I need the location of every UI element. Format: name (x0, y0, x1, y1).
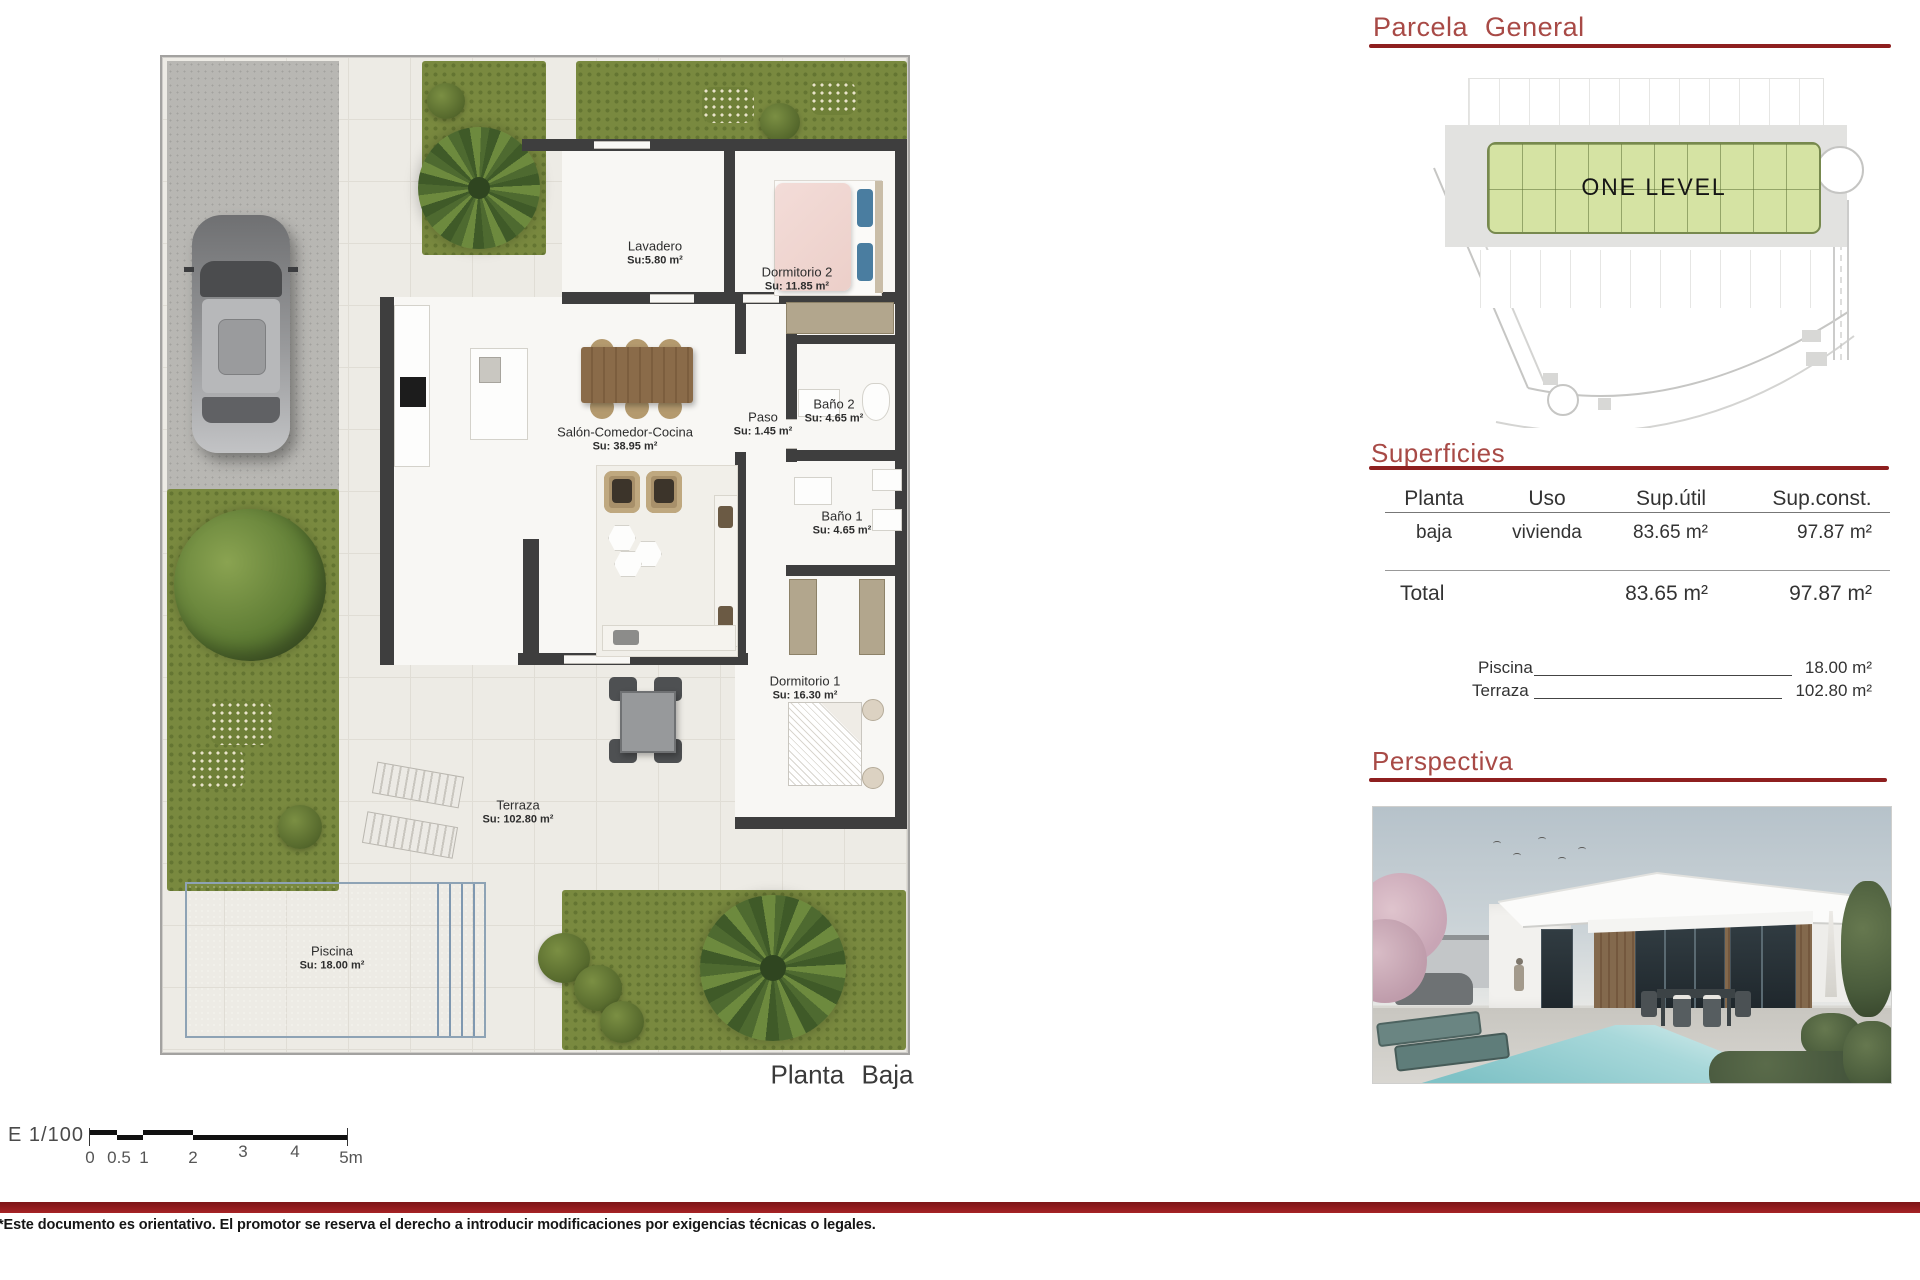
car-illustration (192, 215, 290, 453)
bedside-stool (862, 699, 884, 721)
plan-sheet-page: Lavadero Su:5.80 m² Dormitorio 2 Su: 11.… (0, 0, 1920, 1280)
photo-tree-right (1841, 881, 1892, 1017)
parcel-strip-bottom (1480, 250, 1820, 308)
total-sup-util: 83.65 m² (1625, 582, 1708, 606)
bed-headboard (875, 181, 883, 293)
sink (479, 357, 501, 383)
car-mirror-right (288, 267, 298, 272)
site-plan: ONE LEVEL (1430, 70, 1908, 428)
table-header-rule (1385, 512, 1890, 513)
bath2-toilet (862, 383, 890, 421)
cul-de-sac (1816, 146, 1864, 194)
scale-bar-tick (347, 1128, 348, 1146)
wall-feature-tv (523, 539, 539, 664)
extra-line-terraza (1534, 698, 1782, 699)
floor-plan: Lavadero Su:5.80 m² Dormitorio 2 Su: 11.… (160, 55, 910, 1055)
sofa-bottom (602, 625, 736, 651)
bush-left (278, 805, 322, 849)
wall-under-lavadero (562, 292, 736, 304)
section-rule-parcela (1369, 44, 1891, 48)
bed-pillow (857, 189, 873, 227)
section-rule-superficies (1369, 466, 1889, 470)
scale-bar-segment (143, 1130, 193, 1135)
armchair-cushion (654, 479, 674, 503)
wardrobe-dorm2 (786, 302, 894, 334)
bedside-stool (862, 767, 884, 789)
pool-step-line (473, 884, 475, 1036)
wall-paso-stub (735, 304, 746, 354)
person-head (1516, 958, 1523, 965)
room-label-lavadero: Lavadero Su:5.80 m² (627, 239, 683, 268)
car-windshield (200, 261, 282, 297)
section-rule-perspectiva (1369, 778, 1887, 782)
sun-lounger (372, 762, 464, 809)
tree-left (174, 509, 326, 661)
terrace-table (620, 691, 676, 753)
scale-bar-segment (90, 1130, 117, 1135)
scale-number: 5m (339, 1148, 363, 1168)
cooktop (400, 377, 426, 407)
wardrobe-dorm1 (859, 579, 885, 655)
photo-chair (1641, 991, 1657, 1017)
extra-line-piscina (1534, 675, 1792, 676)
wall-dorm1-bottom (735, 817, 907, 829)
photo-chair (1673, 995, 1691, 1027)
wall-lavadero-dorm2 (724, 139, 735, 304)
bush-top (427, 83, 465, 119)
room-label-salon: Salón-Comedor-Cocina Su: 38.95 m² (557, 425, 693, 454)
person-body (1514, 965, 1524, 991)
photo-table-top (1657, 989, 1735, 998)
parcel-strip-top (1468, 78, 1824, 127)
extra-value-terraza: 102.80 m² (1795, 681, 1872, 701)
extra-value-piscina: 18.00 m² (1805, 658, 1872, 678)
flower-patch-top-1 (702, 87, 754, 123)
scale-number: 3 (238, 1142, 247, 1162)
pool-step-line (449, 884, 451, 1036)
room-label-paso: Paso Su: 1.45 m² (734, 410, 793, 439)
scale-number: 1 (139, 1148, 148, 1168)
photo-table-leg (1661, 998, 1665, 1026)
wall-bath2-top (797, 335, 907, 344)
one-level-label: ONE LEVEL (1496, 144, 1813, 232)
pool-step-line (437, 884, 439, 1036)
dining-table (581, 347, 693, 403)
room-label-bano2: Baño 2 Su: 4.65 m² (805, 397, 864, 426)
wall-kitchen-left (380, 297, 394, 665)
armchair (646, 471, 682, 513)
room-label-bano1: Baño 1 Su: 4.65 m² (813, 509, 872, 538)
window-top (594, 141, 650, 149)
armchair-cushion (612, 479, 632, 503)
scale-number: 0 (85, 1148, 94, 1168)
section-title-parcela: Parcela General (1373, 12, 1585, 43)
scale-number: 0.5 (107, 1148, 131, 1168)
photo-chair (1735, 991, 1751, 1017)
wall-top (522, 139, 907, 151)
total-sup-const: 97.87 m² (1789, 582, 1872, 606)
table-total-rule (1385, 570, 1890, 571)
car-rear-window (202, 397, 280, 423)
scale-bar-segment (117, 1135, 143, 1140)
cell-sup-util: 83.65 m² (1633, 522, 1708, 544)
scale-label: E 1/100 (8, 1124, 84, 1147)
scale-number: 4 (290, 1142, 299, 1162)
col-header-sup-util: Sup.útil (1636, 487, 1706, 511)
car-mirror-left (184, 267, 194, 272)
scale-bar-tick (89, 1128, 90, 1146)
cell-planta: baja (1416, 522, 1452, 544)
bath1-fixture (872, 469, 902, 491)
cell-sup-const: 97.87 m² (1797, 522, 1872, 544)
armchair (604, 471, 640, 513)
room-label-dormitorio1: Dormitorio 1 Su: 16.30 m² (770, 674, 841, 703)
scale-number: 2 (188, 1148, 197, 1168)
footer-disclaimer: *Este documento es orientativo. El promo… (0, 1217, 876, 1233)
car-sunroof (218, 319, 266, 375)
bush-bottom-3 (600, 1001, 644, 1043)
perspective-render (1372, 806, 1892, 1084)
bath1-fixture (872, 509, 902, 531)
extra-label-piscina: Piscina (1478, 658, 1533, 678)
sofa-cushion (613, 630, 639, 645)
sofa-cushion (718, 506, 733, 528)
wall-bath-divider (786, 450, 907, 461)
photo-table-leg (1727, 998, 1731, 1026)
total-label: Total (1400, 582, 1444, 606)
room-label-piscina: Piscina Su: 18.00 m² (300, 944, 365, 973)
one-level-block: ONE LEVEL (1487, 142, 1821, 234)
col-header-uso: Uso (1528, 487, 1565, 511)
door-kitchen (650, 294, 694, 303)
sun-lounger (362, 811, 458, 858)
section-title-perspectiva: Perspectiva (1372, 746, 1513, 777)
bed-dorm1 (788, 702, 862, 786)
photo-hedge (1843, 1021, 1892, 1084)
wardrobe-dorm1 (789, 579, 817, 655)
flower-patch-left-2 (190, 749, 244, 789)
photo-chair (1703, 995, 1721, 1027)
col-header-sup-const: Sup.const. (1772, 487, 1871, 511)
palm-tree-bottom (700, 895, 846, 1041)
section-title-superficies: Superficies (1371, 438, 1505, 469)
scale-bar-segment (193, 1135, 347, 1140)
room-label-terraza: Terraza Su: 102.80 m² (483, 798, 554, 827)
col-header-planta: Planta (1404, 487, 1464, 511)
extra-label-terraza: Terraza (1472, 681, 1529, 701)
footer-red-band (0, 1202, 1920, 1213)
bed-fold (821, 703, 861, 743)
bed-pillow (857, 243, 873, 281)
cell-uso: vivienda (1512, 522, 1582, 544)
room-label-dormitorio2: Dormitorio 2 Su: 11.85 m² (762, 265, 833, 294)
flower-patch-top-2 (810, 81, 856, 115)
pool-step-line (461, 884, 463, 1036)
flower-patch-left-1 (210, 701, 272, 745)
bath1-sink (794, 477, 832, 505)
wall-bath1-bottom (786, 565, 907, 576)
bush-top-right-1 (760, 103, 800, 141)
plan-caption: Planta Baja (771, 1060, 914, 1091)
kitchen-island (470, 348, 528, 440)
